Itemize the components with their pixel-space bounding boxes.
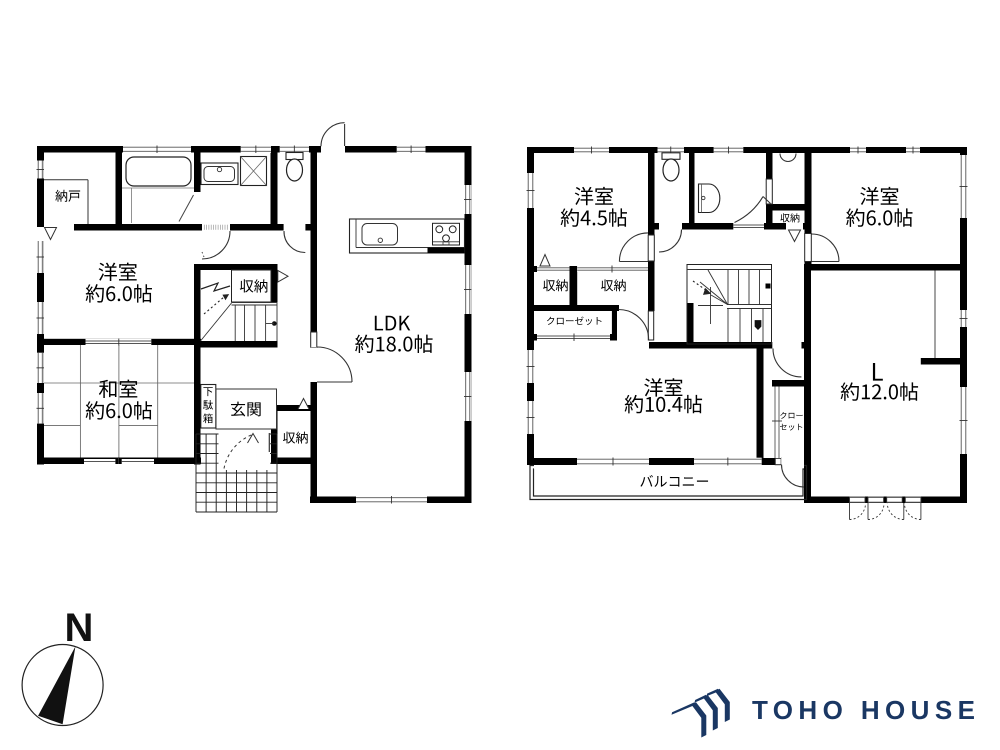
svg-text:N: N	[65, 606, 94, 650]
svg-text:TOHO HOUSE: TOHO HOUSE	[752, 695, 980, 725]
